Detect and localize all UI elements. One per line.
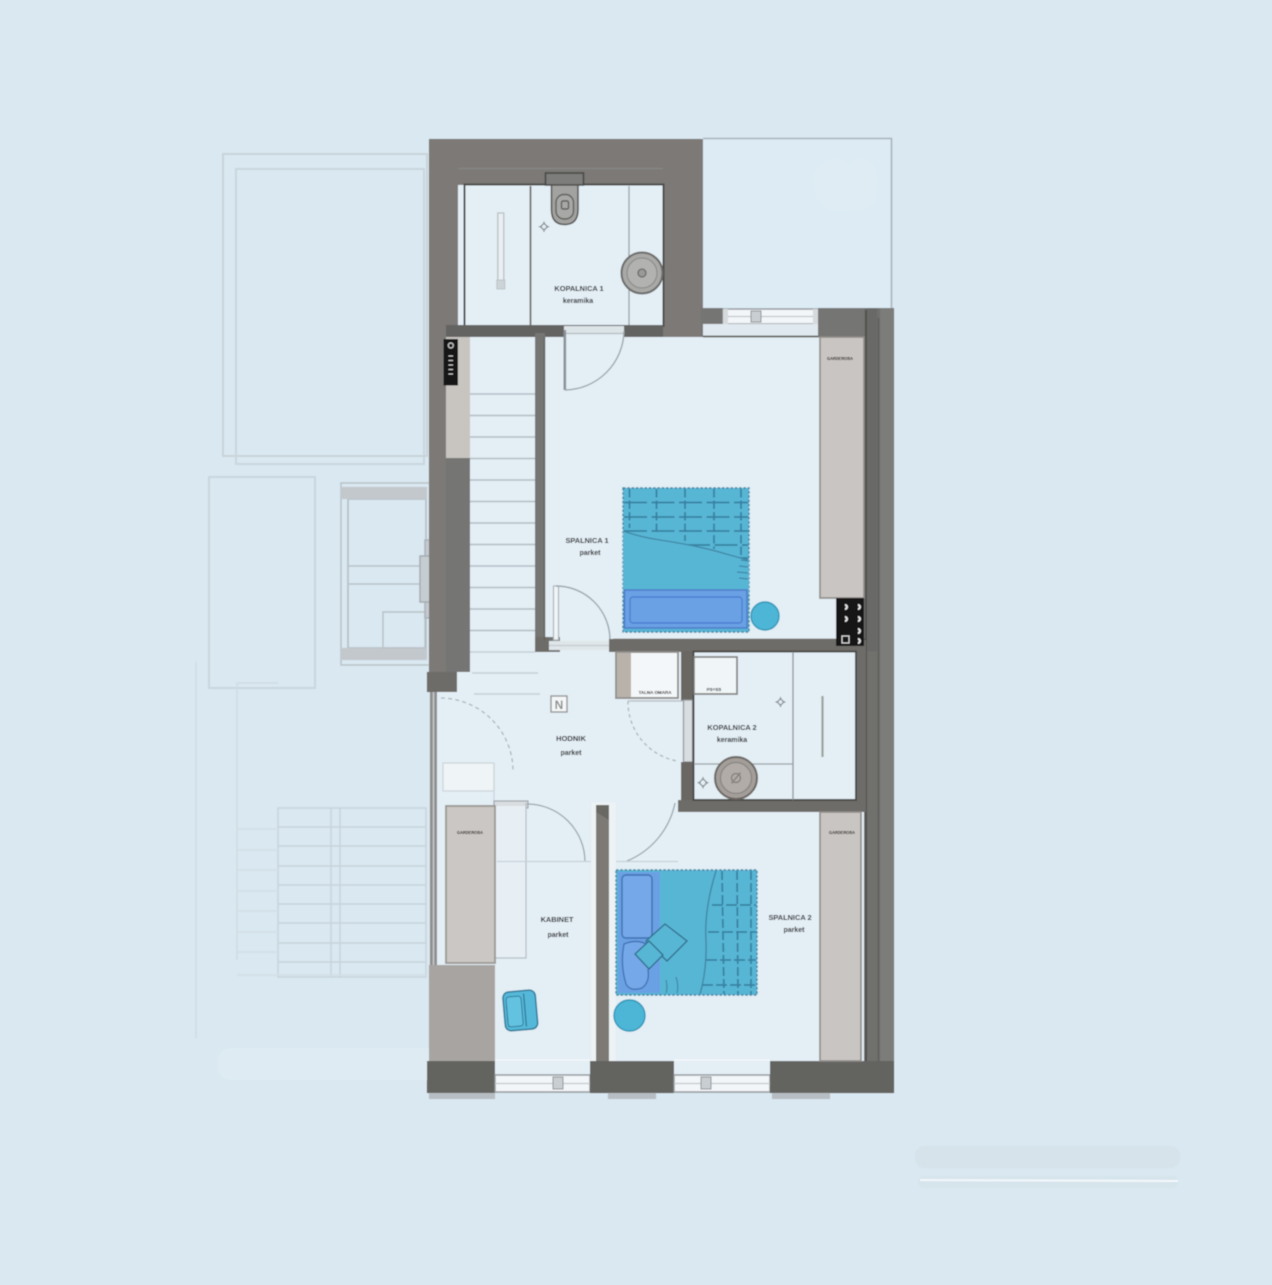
svg-text:SPALNICA 2: SPALNICA 2 <box>768 913 811 922</box>
svg-text:N: N <box>555 698 564 712</box>
svg-text:GARDEROBA: GARDEROBA <box>457 830 484 835</box>
svg-text:parket: parket <box>579 550 601 557</box>
svg-text:keramika: keramika <box>563 298 593 305</box>
svg-text:KABINET: KABINET <box>541 915 574 924</box>
svg-text:TALNA OMARA: TALNA OMARA <box>639 690 673 695</box>
svg-text:GARDEROBA: GARDEROBA <box>829 830 856 835</box>
svg-text:PS+SS: PS+SS <box>707 687 722 692</box>
svg-text:SPALNICA 1: SPALNICA 1 <box>565 536 608 545</box>
svg-text:keramika: keramika <box>717 737 747 744</box>
svg-text:parket: parket <box>560 750 582 757</box>
svg-text:KOPALNICA 2: KOPALNICA 2 <box>707 723 756 732</box>
svg-text:parket: parket <box>547 932 569 939</box>
svg-text:KOPALNICA 1: KOPALNICA 1 <box>554 284 603 293</box>
svg-text:HODNIK: HODNIK <box>556 734 586 743</box>
svg-text:GARDEROBA: GARDEROBA <box>827 356 854 361</box>
svg-text:parket: parket <box>783 927 805 934</box>
